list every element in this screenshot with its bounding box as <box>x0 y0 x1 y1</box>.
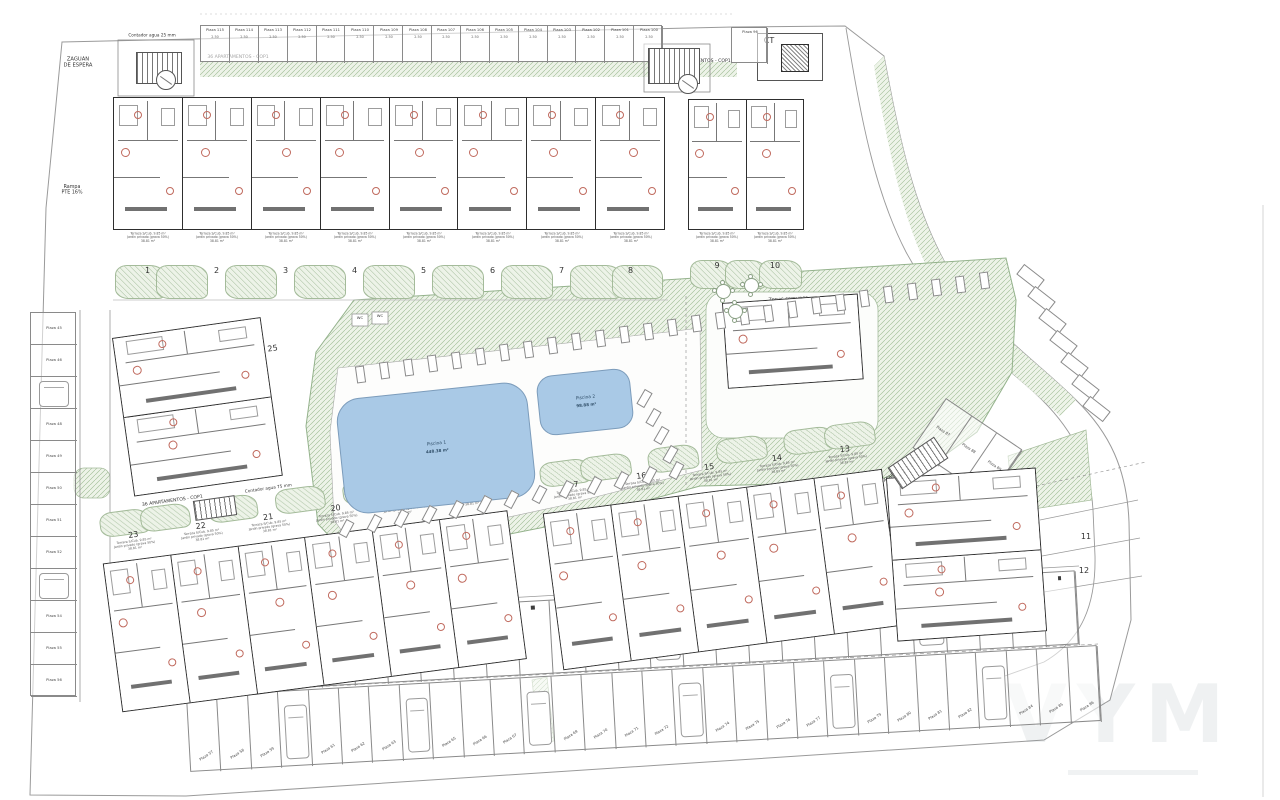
patio-chair-icon <box>730 288 735 293</box>
garden-mound <box>274 484 327 515</box>
interior-wall <box>903 576 1033 586</box>
garden-mound <box>363 265 414 299</box>
car-windshield <box>285 705 305 706</box>
door-swing-icon <box>695 149 704 158</box>
interior-wall <box>316 577 374 586</box>
building <box>113 97 665 230</box>
parking-stall <box>732 28 768 64</box>
garden-strip: 1Terraza S/Cub. 9.85 m² Jardín privado (… <box>113 230 665 300</box>
car-windshield <box>531 703 545 705</box>
interior-wall <box>405 528 412 572</box>
furniture-icon <box>420 533 436 554</box>
interior-wall <box>215 101 216 140</box>
parking-stall <box>885 656 920 734</box>
car-windshield <box>289 717 303 719</box>
interior-wall <box>827 566 872 573</box>
door-swing-icon <box>469 148 478 157</box>
interior-wall <box>452 602 497 609</box>
unit-cell <box>458 98 527 229</box>
door-swing-icon <box>676 604 685 613</box>
parking-stall <box>461 26 490 63</box>
interior-wall <box>147 101 148 140</box>
door-swing-icon <box>701 508 710 517</box>
interior-wall <box>750 141 800 142</box>
interior-wall <box>187 140 247 141</box>
door-swing-icon <box>744 595 753 604</box>
building-block-1-8: 1Terraza S/Cub. 9.85 m² Jardín privado (… <box>113 97 665 300</box>
unit-caption: Terraza S/Cub. 9.85 m² Jardín privado (g… <box>744 232 806 243</box>
terrace-slab <box>639 628 681 637</box>
interior-wall <box>450 559 508 568</box>
parking-stall <box>582 673 617 751</box>
pool-area-label: 448.38 m² <box>397 445 477 458</box>
interior-wall <box>847 478 854 525</box>
car-windshield <box>528 692 548 693</box>
pool-label: Piscina 2 <box>542 390 630 404</box>
interior-wall <box>690 538 749 547</box>
door-swing-icon <box>335 148 344 157</box>
unit-caption: Terraza S/Cub. 9.85 m² Jardín privado (g… <box>171 527 234 546</box>
door-swing-icon <box>935 587 945 597</box>
patio-chair-icon <box>742 308 747 313</box>
terrace-slab <box>698 207 733 211</box>
car-windshield <box>680 683 700 684</box>
terrace-slab <box>469 207 511 211</box>
door-swing-icon <box>441 187 449 195</box>
unit-cell <box>252 98 321 229</box>
door-swing-icon <box>609 613 618 622</box>
car-icon <box>678 682 703 737</box>
furniture-icon <box>862 483 879 505</box>
door-swing-icon <box>549 148 558 157</box>
interior-wall <box>964 557 967 581</box>
parking-stall <box>317 26 346 63</box>
unit-cell <box>596 98 664 229</box>
unit-caption: Terraza S/Cub. 9.85 m² Jardín privado (g… <box>103 535 166 554</box>
parking-stall <box>308 688 343 766</box>
terrace-slab <box>572 637 614 646</box>
parking-stall <box>432 26 461 63</box>
interior-wall <box>338 536 345 580</box>
interior-wall <box>203 554 210 598</box>
interior-wall <box>644 504 651 551</box>
car-windshield <box>683 695 697 697</box>
furniture-icon <box>161 108 175 126</box>
garden-mound <box>612 265 663 299</box>
door-swing-icon <box>168 657 177 666</box>
interior-wall <box>118 140 178 141</box>
parking-stall <box>339 687 374 765</box>
door-swing-icon <box>938 565 947 574</box>
door-swing-icon <box>837 350 846 359</box>
unit-caption: Terraza S/Cub. 9.85 m² Jardín privado (g… <box>393 232 455 243</box>
door-swing-icon <box>327 591 337 601</box>
parking-stall <box>1067 646 1102 724</box>
door-swing-icon <box>158 339 167 348</box>
door-swing-icon <box>282 148 291 157</box>
parking-stall <box>374 26 403 63</box>
car-windshield <box>831 675 851 676</box>
interior-wall <box>183 638 228 645</box>
unit-caption: Terraza S/Cub. 9.85 m² Jardín privado (g… <box>679 468 742 487</box>
interior-wall <box>252 177 298 178</box>
door-swing-icon <box>235 187 243 195</box>
parking-stall <box>31 537 77 569</box>
car-icon <box>39 381 69 407</box>
furniture-icon <box>487 524 503 545</box>
door-swing-icon <box>272 111 280 119</box>
garden-mound <box>715 434 768 465</box>
wc-kiosk <box>352 314 368 326</box>
unit-cell <box>747 100 804 229</box>
door-swing-icon <box>904 508 914 518</box>
meter-box-icon <box>531 606 535 610</box>
interior-wall <box>747 177 785 178</box>
meter-box-icon <box>1057 576 1061 580</box>
building-block-13-17: 17Terraza S/Cub. 9.85 m² Jardín privado … <box>536 417 902 670</box>
door-swing-icon <box>372 187 380 195</box>
interior-wall <box>250 629 295 636</box>
door-swing-icon <box>132 365 142 375</box>
interior-wall <box>321 177 367 178</box>
door-swing-icon <box>405 580 415 590</box>
parking-stall <box>187 695 222 773</box>
car-icon <box>39 573 69 599</box>
door-swing-icon <box>768 543 778 553</box>
door-swing-icon <box>504 613 513 622</box>
patio-chair-icon <box>720 298 725 303</box>
parking-stall <box>230 26 259 63</box>
door-swing-icon <box>126 575 135 584</box>
door-swing-icon <box>769 499 778 508</box>
terrace-slab <box>400 644 442 653</box>
interior-wall <box>691 583 736 590</box>
door-swing-icon <box>121 148 130 157</box>
car-icon <box>830 674 855 729</box>
patio-chair-icon <box>720 280 725 285</box>
furniture-icon <box>659 510 676 532</box>
furniture-icon <box>728 110 740 127</box>
parking-stall <box>31 345 77 377</box>
car-windshield <box>44 387 64 388</box>
pool-2: Piscina 298.88 m² <box>535 367 635 436</box>
interior-wall <box>384 611 429 618</box>
door-swing-icon <box>1013 521 1022 530</box>
interior-wall <box>195 409 199 432</box>
parking-stall <box>460 680 495 758</box>
car-windshield <box>835 686 849 688</box>
door-swing-icon <box>457 573 467 583</box>
unit-caption: Terraza S/Cub. 9.85 m² Jardín privado (g… <box>600 232 662 243</box>
unit-cell <box>321 98 390 229</box>
door-swing-icon <box>566 526 575 535</box>
unit-cell <box>689 100 747 229</box>
parking-stall <box>703 666 738 744</box>
terrace-slab <box>842 601 884 610</box>
car-icon <box>284 704 309 759</box>
parking-stall <box>612 671 647 749</box>
unit-caption: Terraza S/Cub. 9.85 m² Jardín privado (g… <box>686 232 748 243</box>
interior-wall <box>556 601 601 608</box>
interior-wall <box>896 601 996 609</box>
terrace-slab <box>749 365 832 375</box>
patio-table-icon <box>728 304 743 319</box>
car-windshield <box>987 678 1001 680</box>
interior-wall <box>184 330 188 353</box>
interior-wall <box>622 547 681 556</box>
unit-caption: Terraza S/Cub. 9.85 m² Jardín privado (g… <box>186 232 248 243</box>
parking-stall <box>490 26 519 63</box>
door-swing-icon <box>716 550 726 560</box>
door-swing-icon <box>579 187 587 195</box>
patio-table-icon <box>744 278 759 293</box>
furniture-icon <box>368 108 382 126</box>
interior-wall <box>114 603 172 612</box>
car-windshield <box>406 699 426 700</box>
interior-wall <box>491 101 492 140</box>
interior-wall <box>689 177 727 178</box>
parking-stall <box>605 26 634 63</box>
elevator-cross <box>160 76 172 85</box>
door-swing-icon <box>196 608 206 618</box>
parking-stall <box>491 678 526 756</box>
parking-stall <box>794 661 829 739</box>
green-patch <box>74 468 110 498</box>
patio-chair-icon <box>724 308 729 313</box>
interior-wall <box>576 513 583 560</box>
garden-mound <box>225 265 276 299</box>
interior-wall <box>958 476 961 500</box>
parking-group-top-right: Plaza 96 <box>731 27 767 63</box>
wc-kiosk <box>372 312 388 324</box>
interior-wall <box>898 495 1028 505</box>
unit-caption: Terraza S/Cub. 9.85 m² Jardín privado (g… <box>747 459 810 478</box>
parking-stall <box>31 601 77 633</box>
interior-wall <box>131 450 231 465</box>
terrace-slab <box>774 610 816 619</box>
unit-caption: Terraza S/Cub. 9.85 m² Jardín privado (g… <box>531 232 593 243</box>
interior-wall <box>458 177 504 178</box>
furniture-icon <box>218 559 234 580</box>
door-swing-icon <box>302 640 311 649</box>
interior-wall <box>757 529 816 538</box>
door-swing-icon <box>648 187 656 195</box>
interior-wall <box>692 141 742 142</box>
transformer-ct-cell <box>781 44 809 72</box>
door-swing-icon <box>169 418 178 427</box>
interior-wall <box>383 568 441 577</box>
parking-stall <box>855 658 890 736</box>
parking-stall <box>1037 648 1072 726</box>
parking-stall <box>764 663 799 741</box>
door-swing-icon <box>763 113 771 121</box>
interior-wall <box>183 177 229 178</box>
terrace-slab <box>125 207 167 211</box>
door-swing-icon <box>616 111 624 119</box>
unit-cell <box>893 550 1046 641</box>
furniture-icon <box>218 327 248 342</box>
door-swing-icon <box>260 558 269 567</box>
door-swing-icon <box>731 187 739 195</box>
interior-wall <box>114 177 160 178</box>
interior-wall <box>317 620 362 627</box>
door-swing-icon <box>479 111 487 119</box>
door-swing-icon <box>252 449 261 458</box>
unit-caption: Terraza S/Cub. 9.85 m² Jardín privado (g… <box>324 232 386 243</box>
pool-label: Piscina 1 <box>393 436 481 450</box>
interior-wall <box>527 177 573 178</box>
interior-wall <box>890 520 990 528</box>
unit-caption: Terraza S/Cub. 9.85 m² Jardín privado (g… <box>255 232 317 243</box>
interior-wall <box>733 322 851 331</box>
terrace-slab <box>332 653 374 662</box>
elevator-icon <box>156 70 176 90</box>
parking-group-left-column: Plaza 45Plaza 46Plaza 47Plaza 48Plaza 49… <box>30 312 76 696</box>
parking-stall <box>916 655 951 733</box>
terrace-slab <box>263 207 305 211</box>
furniture-icon <box>785 110 797 127</box>
interior-wall <box>325 140 385 141</box>
interior-wall <box>825 520 884 529</box>
interior-wall <box>712 495 719 542</box>
interior-wall <box>472 519 479 563</box>
door-swing-icon <box>706 113 714 121</box>
door-swing-icon <box>118 618 128 628</box>
door-swing-icon <box>201 148 210 157</box>
door-swing-icon <box>739 334 749 344</box>
interior-wall <box>727 348 818 355</box>
interior-wall <box>390 177 436 178</box>
furniture-icon <box>151 568 167 589</box>
parking-stall <box>31 505 77 537</box>
garden-mound <box>139 502 192 533</box>
terrace-slab <box>194 207 236 211</box>
lot-line <box>1042 538 1140 556</box>
unit-cell <box>114 98 183 229</box>
furniture-icon <box>794 492 811 514</box>
parking-stall <box>31 409 77 441</box>
patio-chair-icon <box>748 292 753 297</box>
terrace-slab <box>331 207 373 211</box>
furniture-icon <box>643 108 657 126</box>
furniture-icon <box>505 108 519 126</box>
terrace-slab <box>915 536 1007 546</box>
garden-mound <box>432 265 483 299</box>
interior-wall <box>554 556 613 565</box>
interior-wall <box>596 177 642 178</box>
door-swing-icon <box>275 597 285 607</box>
door-swing-icon <box>629 148 638 157</box>
door-swing-icon <box>932 483 941 492</box>
unit-caption: Terraza S/Cub. 9.85 m² Jardín privado (g… <box>815 450 878 469</box>
watermark-bar <box>1068 770 1198 775</box>
elevator-icon <box>678 74 698 94</box>
terrace-slab <box>156 464 247 481</box>
parking-stall <box>946 653 981 731</box>
parking-stall <box>519 26 548 63</box>
terrace-slab <box>467 636 509 645</box>
elevator-cross <box>682 80 694 89</box>
unit-cell <box>183 98 252 229</box>
parking-stall <box>403 26 432 63</box>
door-swing-icon <box>879 578 888 587</box>
parking-stall <box>733 665 768 743</box>
building-block-9-10: 9Terraza S/Cub. 9.85 m² Jardín privado (… <box>688 99 804 290</box>
door-swing-icon <box>134 111 142 119</box>
interior-wall <box>759 575 804 582</box>
pool-area-label: 98.88 m² <box>546 399 626 412</box>
garden-mound <box>294 265 345 299</box>
parking-stall <box>31 665 77 697</box>
interior-wall <box>136 563 143 607</box>
terrace-slab <box>707 619 749 628</box>
unit-cell <box>527 98 596 229</box>
unit-caption: Terraza S/Cub. 9.85 m² Jardín privado (g… <box>117 232 179 243</box>
parking-stall <box>217 694 252 772</box>
door-swing-icon <box>558 571 568 581</box>
door-swing-icon <box>811 587 820 596</box>
patio-chair-icon <box>748 274 753 279</box>
terrace-slab <box>131 680 173 689</box>
building-block-24-25 <box>112 317 283 496</box>
interior-wall <box>531 140 591 141</box>
parking-stall <box>642 670 677 748</box>
patio-table-icon <box>716 284 731 299</box>
door-swing-icon <box>166 187 174 195</box>
parking-stall <box>288 26 317 63</box>
furniture-icon <box>229 405 259 420</box>
building-block-11-12 <box>886 468 1047 642</box>
door-swing-icon <box>193 567 202 576</box>
door-swing-icon <box>634 517 643 526</box>
door-swing-icon <box>327 549 336 558</box>
patio-chair-icon <box>740 282 745 287</box>
terrace-slab <box>538 207 580 211</box>
door-swing-icon <box>788 187 796 195</box>
interior-wall <box>284 101 285 140</box>
parking-stall <box>31 441 77 473</box>
parking-stall <box>576 26 605 63</box>
parking-stall <box>369 685 404 763</box>
parking-stall <box>31 313 77 345</box>
parking-stall <box>1043 571 1080 647</box>
interior-wall <box>600 140 660 141</box>
furniture-icon <box>727 501 744 523</box>
interior-wall <box>271 545 278 589</box>
door-swing-icon <box>548 111 556 119</box>
site-plan: VYM ZAGUÁN DE ESPERAContador agua 25 mm3… <box>0 0 1280 800</box>
parking-stall <box>345 26 374 63</box>
furniture-icon <box>353 542 369 563</box>
terrace-slab <box>921 617 1013 627</box>
interior-wall <box>774 103 775 142</box>
parking-stall <box>1007 649 1042 727</box>
parking-stall <box>201 26 230 63</box>
door-swing-icon <box>168 440 178 450</box>
door-swing-icon <box>395 540 404 549</box>
interior-wall <box>249 585 307 594</box>
door-swing-icon <box>410 111 418 119</box>
door-swing-icon <box>369 631 378 640</box>
furniture-icon <box>286 551 302 572</box>
interior-wall <box>462 140 522 141</box>
parking-stall <box>248 692 283 770</box>
interior-wall <box>624 592 669 599</box>
door-swing-icon <box>762 149 771 158</box>
furniture-icon <box>574 108 588 126</box>
car-windshield <box>983 666 1003 667</box>
patio-chair-icon <box>712 288 717 293</box>
